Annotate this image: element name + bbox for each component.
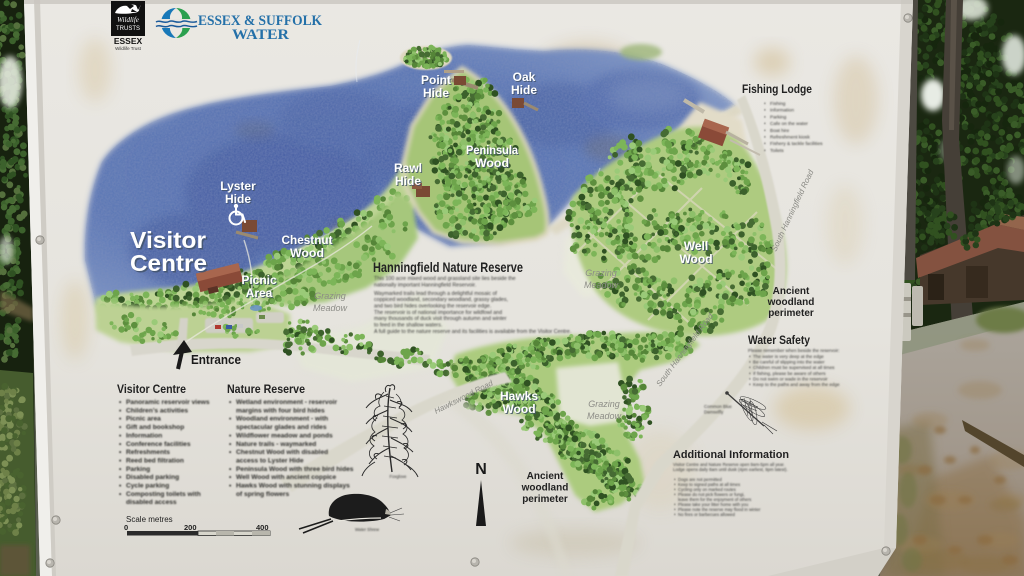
svg-text:Lodge opens daily 8am until du: Lodge opens daily 8am until dusk (4pm ea… [673,467,788,472]
svg-text:Wood: Wood [679,252,712,266]
svg-text:Chestnut Wood with disabled: Chestnut Wood with disabled [236,449,328,456]
svg-text:spectacular glades and rides: spectacular glades and rides [236,424,327,431]
svg-text:Wildflower meadow and ponds: Wildflower meadow and ponds [236,432,333,439]
svg-text:Entrance: Entrance [191,352,241,367]
svg-text:Parking: Parking [126,466,150,473]
svg-text:A full guide to the nature res: A full guide to the nature reserve and i… [374,329,571,335]
svg-text:Parking: Parking [770,114,787,120]
svg-text:Do not swim or wade in the res: Do not swim or wade in the reservoir [753,376,828,381]
svg-text:Woodland environment - with: Woodland environment - with [236,416,328,423]
svg-text:This 100 acre mixed wood and g: This 100 acre mixed wood and grassland s… [374,276,516,282]
svg-text:Cycle parking: Cycle parking [126,483,169,490]
svg-text:Grazing: Grazing [588,399,620,409]
svg-text:ESSEX: ESSEX [114,36,143,46]
svg-text:Children’s activities: Children’s activities [126,407,188,414]
svg-text:Nature trails - waymarked: Nature trails - waymarked [236,441,316,448]
svg-text:Reed bed filtration: Reed bed filtration [126,457,184,464]
svg-text:Disabled parking: Disabled parking [126,474,179,481]
svg-text:Foxglove: Foxglove [390,474,408,479]
svg-text:Wood: Wood [290,246,324,260]
svg-text:Fishing: Fishing [770,101,786,107]
svg-text:Grazing: Grazing [585,268,617,278]
svg-text:woodland: woodland [767,297,815,308]
svg-text:Damselfly: Damselfly [704,409,724,414]
svg-text:Lyster: Lyster [220,179,256,193]
svg-text:Common Blue: Common Blue [704,404,732,409]
svg-text:Information: Information [770,108,794,114]
svg-text:many thousands of duck visit t: many thousands of duck visit through aut… [374,316,507,322]
svg-text:Please remember when beside th: Please remember when beside the reservoi… [748,348,839,353]
svg-text:Wood: Wood [475,156,509,170]
svg-text:Area: Area [246,286,273,300]
svg-text:Nature Reserve: Nature Reserve [227,384,305,396]
svg-text:Hide: Hide [423,86,449,100]
svg-text:0: 0 [124,523,128,532]
svg-text:The water is very deep at the: The water is very deep at the edge [753,354,824,359]
svg-text:woodland: woodland [521,483,569,494]
svg-text:and two bird hides overlooking: and two bird hides overlooking the reser… [374,303,491,309]
svg-text:Wildlife: Wildlife [117,16,139,24]
svg-text:N: N [475,461,487,478]
svg-text:No fires or barbecues allowed: No fires or barbecues allowed [678,512,735,517]
svg-text:nationally important Hanningfi: nationally important Hanningfield Reserv… [374,282,476,288]
svg-text:Hawks Wood with stunning displ: Hawks Wood with stunning displays [236,483,350,490]
svg-text:WATER: WATER [232,27,290,43]
svg-text:Refreshments: Refreshments [126,449,170,456]
svg-text:Picnic: Picnic [241,273,277,287]
svg-text:Fishery & tackle facilities: Fishery & tackle facilities [770,141,823,147]
svg-text:Boat hire: Boat hire [770,128,790,134]
svg-text:Conference facilities: Conference facilities [126,441,191,448]
svg-text:Oak: Oak [513,70,536,84]
svg-text:Hide: Hide [395,174,421,188]
svg-text:Ancient: Ancient [773,286,810,297]
svg-text:Toilets: Toilets [770,148,784,154]
svg-text:Chestnut: Chestnut [282,233,333,247]
svg-text:Water Shrew: Water Shrew [355,527,380,532]
svg-text:perimeter: perimeter [522,494,568,505]
svg-text:Keep to the paths and away fro: Keep to the paths and away from the edge [753,382,840,387]
svg-text:TRUSTS: TRUSTS [116,26,140,32]
svg-text:coppiced woodland, secondary w: coppiced woodland, secondary woodland, g… [374,297,508,303]
svg-text:access to Lyster Hide: access to Lyster Hide [236,457,304,464]
svg-text:Wetland environment - reservoi: Wetland environment - reservoir [236,399,337,406]
svg-text:Hide: Hide [511,83,537,97]
svg-text:disabled access: disabled access [126,499,177,506]
svg-text:Additional Information: Additional Information [673,449,789,461]
svg-text:Peninsula Wood with three bird: Peninsula Wood with three bird hides [236,466,354,473]
svg-text:200: 200 [184,523,197,532]
svg-text:Cafe on the water: Cafe on the water [770,121,808,127]
svg-text:Wildlife Trust: Wildlife Trust [115,46,142,51]
svg-text:Well Wood with ancient coppice: Well Wood with ancient coppice [236,474,336,481]
svg-text:Visitor Centre: Visitor Centre [117,384,186,396]
svg-text:Panoramic reservoir views: Panoramic reservoir views [126,399,210,406]
svg-text:Waymarked trails lead through: Waymarked trails lead through a delightf… [374,291,497,297]
svg-text:Centre: Centre [130,250,207,276]
svg-text:Ancient: Ancient [527,471,564,482]
svg-text:Children must be supervised at: Children must be supervised at all times [753,365,835,370]
svg-text:Scale metres: Scale metres [126,515,173,524]
svg-text:Be careful of slipping into th: Be careful of slipping into the water [753,360,825,365]
svg-text:Information: Information [126,432,162,439]
svg-text:Hanningfield Nature Reserve: Hanningfield Nature Reserve [373,259,523,275]
svg-text:Point: Point [421,73,451,87]
svg-text:margins with four bird hides: margins with four bird hides [236,407,325,414]
svg-text:Wood: Wood [502,402,535,416]
svg-text:Meadow: Meadow [313,303,348,313]
svg-text:of spring flowers: of spring flowers [236,491,289,498]
svg-text:Picnic area: Picnic area [126,416,161,423]
svg-text:to feed in the shallow waters.: to feed in the shallow waters. [374,322,442,328]
svg-text:Refreshment kiosk: Refreshment kiosk [770,135,810,141]
svg-text:If fishing, please be aware of: If fishing, please be aware of others [753,371,826,376]
svg-text:Rawl: Rawl [394,161,422,175]
svg-text:Well: Well [684,239,708,253]
svg-text:Hide: Hide [225,192,251,206]
svg-text:The reservoir is of national i: The reservoir is of national importance … [374,310,502,316]
svg-text:Hawks: Hawks [500,389,538,403]
svg-text:Composting toilets with: Composting toilets with [126,491,201,498]
svg-text:Meadow: Meadow [584,280,619,290]
svg-text:Fishing Lodge: Fishing Lodge [742,82,812,96]
svg-text:Water Safety: Water Safety [748,335,811,347]
svg-text:Peninsula: Peninsula [466,143,518,157]
svg-text:Meadow: Meadow [587,411,622,421]
svg-text:Gift and bookshop: Gift and bookshop [126,424,184,431]
svg-text:perimeter: perimeter [768,308,814,319]
svg-text:Grazing: Grazing [314,291,346,301]
